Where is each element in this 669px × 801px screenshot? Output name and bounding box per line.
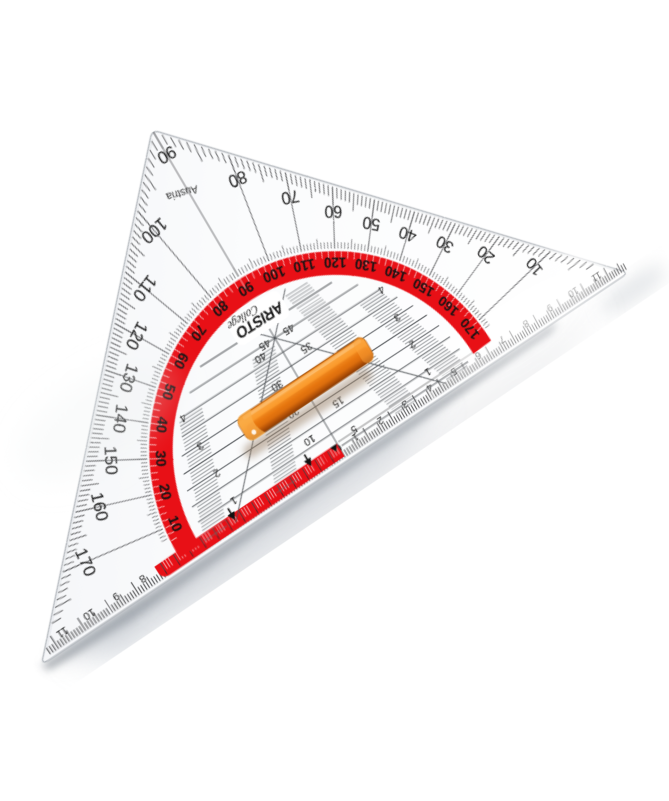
svg-text:30: 30 <box>152 450 169 467</box>
svg-text:70: 70 <box>280 186 302 208</box>
svg-text:50: 50 <box>361 212 381 234</box>
svg-text:120: 120 <box>324 254 347 270</box>
